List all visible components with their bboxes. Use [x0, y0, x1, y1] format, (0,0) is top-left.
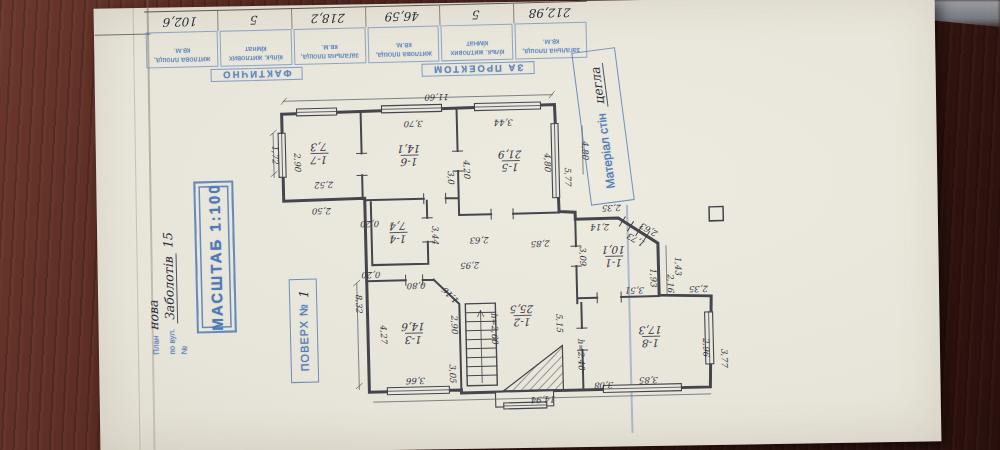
windows [277, 98, 714, 414]
address-value: нова [146, 300, 162, 331]
address-label: по вул. [167, 329, 177, 355]
dimension-label: h=2,40 [576, 338, 587, 370]
dimension-label: 3,09 [578, 246, 588, 267]
dimension-label: 2,35 [602, 203, 622, 213]
room-label: 1-77,3 [310, 141, 329, 166]
dimension-label: 3,44 [430, 225, 440, 245]
dimension-label: h=2,60 [489, 312, 500, 344]
dimension-label: 3,77 [719, 348, 729, 369]
dimension-label: 3,85 [639, 375, 659, 385]
dimension-label: 14,94 [531, 394, 556, 405]
dimension-label: 2,96 [701, 337, 711, 358]
address-value: 15 [160, 233, 175, 249]
address-label: № [180, 346, 189, 355]
dimension-label: 8,32 [354, 294, 364, 314]
dimension-label: 4,20 [462, 159, 472, 179]
room-label: 1-521,9 [498, 148, 523, 174]
chimney [709, 207, 723, 221]
svg-text:14,6: 14,6 [401, 321, 426, 334]
dimension-label: 2,95 [460, 260, 480, 270]
dimension-label: 5,77 [563, 167, 573, 188]
svg-text:14,1: 14,1 [398, 143, 422, 156]
svg-text:1-8: 1-8 [641, 337, 660, 349]
dimension-label: 2,35 [689, 284, 709, 294]
dimension-label: 1,43 [673, 256, 683, 276]
dimension-label: 0,80 [407, 281, 427, 291]
dimension-label: 3,08 [594, 380, 614, 390]
svg-text:7,3: 7,3 [310, 141, 328, 153]
document-content: ЗА ПРОЕКТОМ ФАКТИЧНО загальна площа, кв.… [0, 0, 1000, 450]
dimension-label: 4,27 [379, 324, 389, 345]
svg-text:1-7: 1-7 [310, 154, 329, 166]
dimension-label: 2,85 [531, 239, 551, 249]
svg-text:1-6: 1-6 [400, 156, 419, 168]
dimension-label: 3,70 [404, 119, 424, 129]
address-row: № [180, 346, 189, 355]
wall-material-label: Матеріал стін [594, 112, 618, 189]
svg-text:1-4: 1-4 [390, 233, 408, 245]
svg-text:7,4: 7,4 [390, 220, 407, 232]
wall-material-value: цегла [587, 63, 608, 108]
address-value: Заболотів [161, 254, 179, 324]
floor-stamp: ПОВЕРХ № 1 [289, 278, 320, 383]
scale-stamp: МАСШТАБ 1:100 [193, 180, 237, 333]
dimension-label: 2,63 [638, 221, 660, 240]
dimension-label: 0,20 [361, 270, 381, 280]
svg-text:10,1: 10,1 [602, 244, 626, 257]
room-label: 1-614,1 [398, 143, 422, 169]
dimension-label: 3,66 [405, 376, 426, 386]
scale-stamp-label: МАСШТАБ 1:100 [205, 183, 226, 331]
plan-labels: 1-77,31-614,11-521,91-47,41-314,61-225,5… [269, 85, 731, 411]
svg-text:1-2: 1-2 [513, 316, 532, 328]
floor-stamp-value: 1 [295, 290, 310, 299]
address-label: План [151, 336, 160, 356]
dimension-label: 3,0 [446, 170, 456, 184]
dimension-label: 0,20 [360, 219, 380, 229]
dimension-label: 2,90 [292, 152, 302, 172]
dimension-label: 1,72 [270, 145, 280, 165]
room-label: 1-47,4 [389, 220, 408, 245]
address-row: по вул. Заболотів 15 [160, 233, 179, 355]
floor-stamp-label: ПОВЕРХ № [297, 303, 311, 371]
svg-text:25,5: 25,5 [509, 303, 534, 316]
dimension-label: 4,80 [542, 152, 552, 172]
room-label: 1-314,6 [401, 321, 426, 347]
dimension-label: 2,90 [449, 315, 459, 335]
dimension-label: 5,15 [554, 313, 564, 333]
dimension-label: 3,05 [448, 364, 458, 384]
room-label: 1-225,5 [509, 303, 534, 329]
dimension-label: 2,52 [314, 180, 334, 190]
svg-text:21,9: 21,9 [498, 148, 523, 161]
room-label: 1-110,1 [602, 244, 626, 270]
outer-walls [282, 101, 714, 397]
dimension-label: 11,60 [424, 92, 449, 103]
dimension-label: 2,14 [590, 222, 610, 232]
dimension-label: 1,93 [648, 268, 658, 288]
dimension-label: 3,44 [494, 117, 514, 127]
svg-text:17,3: 17,3 [638, 324, 663, 337]
room-label: 1-817,3 [638, 324, 663, 350]
dimension-label: 2,16 [665, 273, 675, 294]
dimension-label: 2,63 [470, 235, 490, 245]
dimension-label: 2,50 [312, 206, 332, 216]
address-stamp-block: План нова по вул. Заболотів 15 № [135, 159, 196, 355]
svg-text:1-1: 1-1 [606, 257, 623, 269]
dimension-label: 3,51 [625, 285, 644, 295]
svg-text:1-3: 1-3 [404, 334, 423, 346]
svg-text:1-5: 1-5 [501, 162, 520, 174]
address-row: План нова [146, 300, 162, 355]
